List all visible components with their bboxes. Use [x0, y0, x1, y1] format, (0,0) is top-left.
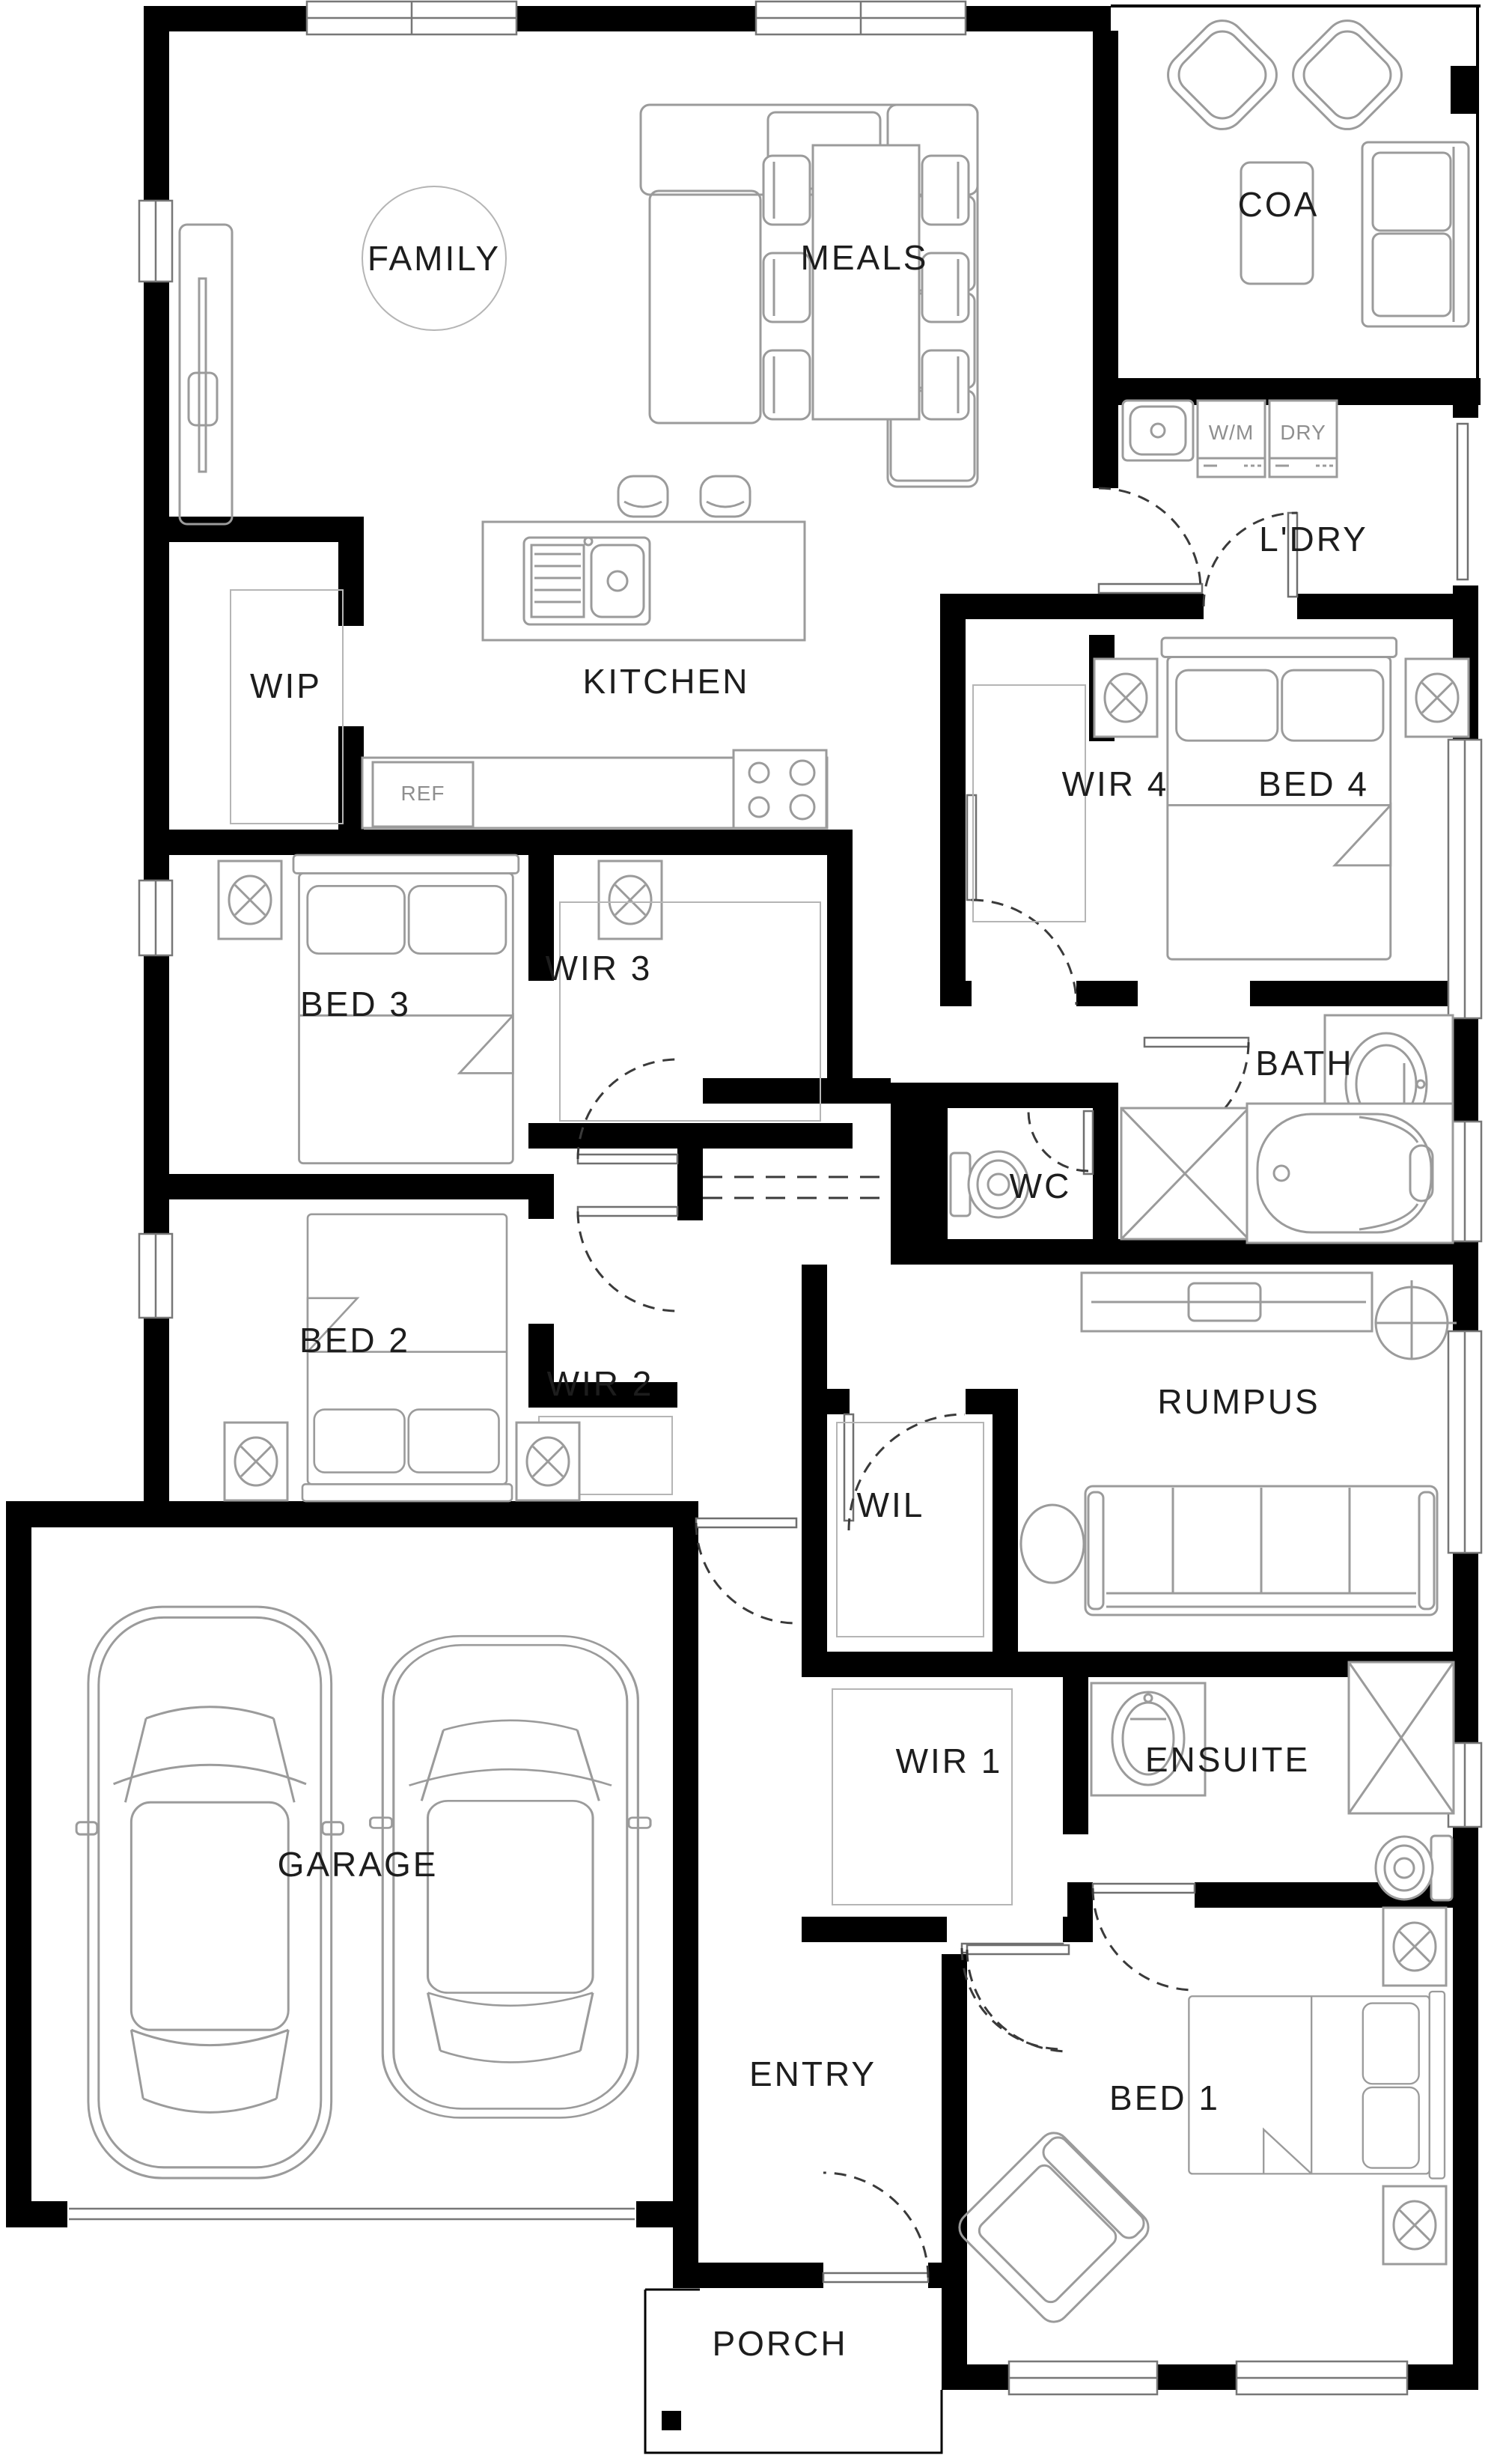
appliance-label-ref: REF	[401, 782, 445, 806]
appliance-label-wm: W/M	[1209, 421, 1254, 445]
outdoor-chair-icon	[1159, 11, 1286, 139]
bedside-table-icon	[1383, 1908, 1446, 1986]
shower-icon	[1121, 1108, 1248, 1239]
room-label-ldry: L'DRY	[1259, 519, 1368, 559]
outdoor-sofa-icon	[1362, 142, 1469, 326]
door-icon	[962, 1944, 1063, 2049]
floor-plan-drawing	[0, 0, 1497, 2464]
door-icon	[967, 1945, 1069, 2051]
room-label-bed3: BED 3	[300, 984, 411, 1024]
window-icon	[139, 201, 172, 282]
door-icon	[1099, 488, 1202, 593]
side-table-icon	[1021, 1505, 1084, 1583]
room-label-wil: WIL	[857, 1485, 925, 1525]
porch-post-icon	[662, 2411, 681, 2430]
external-door-icon	[1448, 418, 1481, 585]
furniture	[76, 11, 1469, 2328]
room-label-bed2: BED 2	[299, 1320, 410, 1360]
door-icon	[967, 795, 1076, 1005]
front-door-icon	[823, 2173, 928, 2282]
duct	[891, 1108, 948, 1239]
bedside-table-icon	[1406, 659, 1469, 737]
room-label-wir2: WIR 2	[547, 1363, 654, 1404]
sofa-icon	[1085, 1486, 1437, 1615]
linen-shelf-icon	[837, 1423, 984, 1637]
window-icon	[756, 1, 966, 34]
bedside-table-icon	[516, 1423, 579, 1500]
room-label-entry: ENTRY	[749, 2054, 876, 2094]
laundry-trough-icon	[1123, 401, 1193, 460]
bedside-table-icon	[219, 861, 281, 939]
room-label-wip: WIP	[250, 666, 322, 706]
door-icon	[1093, 1884, 1195, 1990]
room-label-family: FAMILY	[368, 238, 501, 279]
bedside-table-icon	[225, 1423, 287, 1500]
dining-chair-icon	[922, 350, 969, 419]
cooktop-icon	[734, 750, 826, 828]
door-icon	[696, 1518, 796, 1623]
shower-icon	[1349, 1662, 1454, 1813]
room-label-wir3: WIR 3	[546, 948, 653, 988]
bedside-table-icon	[1094, 659, 1157, 737]
stool-icon	[618, 476, 668, 517]
wardrobe-rail-icon	[832, 1689, 1012, 1905]
plant-icon	[1376, 1280, 1457, 1359]
dining-chair-icon	[763, 156, 810, 225]
car-icon	[76, 1607, 343, 2178]
door-icon	[578, 1207, 677, 1311]
media-cabinet-icon	[1082, 1273, 1372, 1331]
room-label-bed4: BED 4	[1258, 764, 1369, 804]
door-icon	[1028, 1111, 1093, 1174]
room-label-bed1: BED 1	[1109, 2078, 1220, 2118]
bathtub-icon	[1247, 1104, 1453, 1243]
dining-chair-icon	[922, 253, 969, 322]
window-icon	[139, 880, 172, 955]
bulkhead-dashes	[703, 1177, 888, 1198]
appliance-label-dry: DRY	[1280, 421, 1326, 445]
window-icon	[307, 1, 516, 34]
pantry-shelf-icon	[231, 590, 343, 824]
window-icon	[139, 1234, 172, 1318]
room-label-coa: COA	[1238, 184, 1320, 225]
window-icon	[1448, 740, 1481, 1018]
stool-icon	[701, 476, 750, 517]
room-label-ensuite: ENSUITE	[1145, 1739, 1310, 1780]
porch-outline	[645, 2290, 942, 2453]
dining-chair-icon	[763, 350, 810, 419]
bedside-table-icon	[599, 861, 662, 939]
room-label-kitchen: KITCHEN	[583, 661, 750, 702]
room-label-wir1: WIR 1	[896, 1741, 1003, 1781]
room-label-bath: BATH	[1255, 1043, 1353, 1083]
armchair-icon	[954, 2127, 1155, 2328]
window-icon	[1009, 2361, 1157, 2394]
island-bench-icon	[483, 522, 805, 640]
outdoor-chair-icon	[1284, 11, 1411, 139]
bed-icon	[1189, 1992, 1445, 2179]
window-icon	[1448, 1331, 1481, 1553]
room-label-rumpus: RUMPUS	[1157, 1381, 1320, 1422]
room-label-porch: PORCH	[712, 2323, 847, 2364]
toilet-icon	[1376, 1836, 1452, 1900]
floor-plan: FAMILY MEALS COA L'DRY WIP KITCHEN WIR 4…	[0, 0, 1497, 2464]
room-label-wir4: WIR 4	[1062, 764, 1169, 804]
garage-door-icon	[67, 2201, 636, 2227]
tv-unit-icon	[180, 225, 232, 524]
window-icon	[1237, 2361, 1407, 2394]
room-label-wc: WC	[1010, 1166, 1072, 1206]
dining-table-icon	[813, 145, 919, 419]
dining-chair-icon	[922, 156, 969, 225]
bedside-table-icon	[1383, 2186, 1446, 2264]
room-label-meals: MEALS	[801, 237, 929, 278]
room-label-garage: GARAGE	[278, 1844, 439, 1884]
